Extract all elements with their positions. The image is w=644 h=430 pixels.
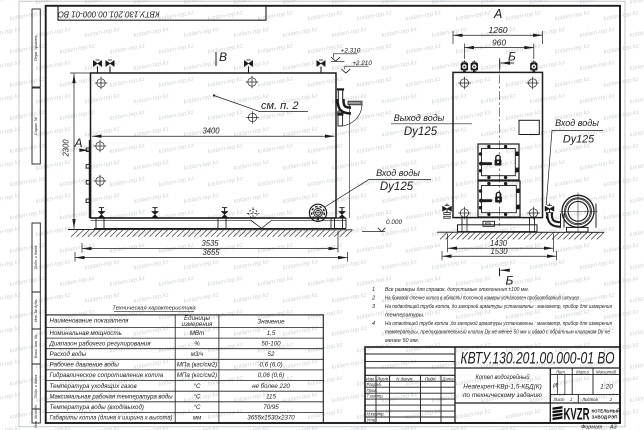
- svg-text:Разраб.: Разраб.: [367, 382, 383, 387]
- svg-text:м3/ч: м3/ч: [191, 351, 204, 358]
- svg-text:Т.контр.: Т.контр.: [367, 394, 384, 399]
- svg-text:115: 115: [266, 394, 276, 401]
- svg-text:Максимальная рабочая температу: Максимальная рабочая температура воды: [50, 394, 173, 401]
- svg-text:Масштаб: Масштаб: [596, 369, 617, 374]
- svg-text:°С: °С: [194, 404, 201, 411]
- svg-text:3400: 3400: [203, 127, 220, 136]
- svg-text:Dy125: Dy125: [563, 134, 595, 146]
- svg-text:Техническая характеристика: Техническая характеристика: [112, 306, 196, 312]
- svg-text:Значение: Значение: [257, 319, 285, 326]
- svg-text:0.000: 0.000: [386, 219, 402, 226]
- svg-text:2: 2: [371, 296, 375, 302]
- svg-text:Подп.: Подп.: [425, 376, 436, 381]
- svg-text:°С: °С: [194, 394, 201, 401]
- svg-text:Инв. № подл.: Инв. № подл.: [34, 404, 38, 428]
- svg-text:1530: 1530: [491, 247, 508, 256]
- svg-text:МПа (кгс/см2): МПа (кгс/см2): [177, 372, 217, 379]
- svg-text:KVZR: KVZR: [564, 406, 590, 424]
- svg-text:КВТУ.130.201.00.000-01 ВО: КВТУ.130.201.00.000-01 ВО: [58, 9, 160, 18]
- svg-text:Б: Б: [506, 274, 514, 288]
- svg-text:°С: °С: [194, 383, 201, 390]
- svg-text:Лит.: Лит.: [555, 369, 566, 374]
- svg-text:%: %: [194, 340, 200, 347]
- svg-text:Листов: Листов: [581, 397, 598, 402]
- svg-text:Heatexpert-КВр-1,5-КБД(К): Heatexpert-КВр-1,5-КБД(К): [463, 384, 541, 391]
- svg-text:Габариты котла (длина х ширина: Габариты котла (длина х ширина х высота): [50, 415, 173, 422]
- svg-text:В: В: [219, 50, 227, 64]
- svg-text:1,5: 1,5: [267, 330, 276, 337]
- svg-text:по техническому заданию: по техническому заданию: [463, 391, 542, 399]
- svg-text:Подп. и дата: Подп. и дата: [34, 246, 38, 270]
- svg-text:измерения: измерения: [182, 321, 214, 328]
- svg-text:Подп. и дата: Подп. и дата: [34, 375, 38, 399]
- svg-text:Формат: Формат: [581, 424, 603, 430]
- svg-text:На боковой стенке котла в обла: На боковой стенке котла в области топочн…: [385, 295, 579, 302]
- svg-text:1260: 1260: [489, 26, 508, 35]
- svg-text:не более 220: не более 220: [252, 383, 290, 390]
- svg-text:Изм.: Изм.: [366, 376, 375, 381]
- svg-text:50-100: 50-100: [261, 340, 281, 347]
- svg-text:Температура уходящих газов: Температура уходящих газов: [50, 383, 138, 390]
- svg-text:А: А: [493, 7, 502, 21]
- svg-text:Справ. №: Справ. №: [33, 116, 38, 135]
- svg-text:Пров.: Пров.: [367, 388, 378, 393]
- svg-text:2300: 2300: [61, 139, 70, 157]
- svg-text:А: А: [74, 136, 83, 150]
- svg-text:Все размеры для справок, допус: Все размеры для справок, допустимые откл…: [385, 287, 529, 293]
- svg-text:Лист: Лист: [376, 376, 388, 381]
- svg-text:Диапазон рабочего регулировани: Диапазон рабочего регулирования: [49, 340, 152, 347]
- svg-text:960: 960: [492, 38, 506, 47]
- svg-text:Перв. примен.: Перв. примен.: [33, 35, 38, 62]
- svg-text:1: 1: [372, 287, 375, 293]
- svg-text:менее 50 мм.: менее 50 мм.: [385, 338, 419, 344]
- svg-text:0,6 (6,0): 0,6 (6,0): [259, 362, 282, 369]
- svg-text:0,06 (0,6): 0,06 (0,6): [258, 372, 284, 379]
- svg-text:КОТЕЛЬНЫЙ: КОТЕЛЬНЫЙ: [592, 409, 621, 414]
- svg-text:3535: 3535: [202, 239, 219, 248]
- svg-text:52: 52: [268, 351, 275, 358]
- svg-text:N докум.: N докум.: [396, 376, 413, 381]
- svg-text:И: И: [553, 383, 558, 390]
- svg-text:МПа (кгс/см2): МПа (кгс/см2): [177, 362, 217, 369]
- svg-text:КВТУ.130.201.00.000-01 ВО: КВТУ.130.201.00.000-01 ВО: [461, 350, 615, 368]
- svg-text:Наименование показателя: Наименование показателя: [50, 318, 130, 325]
- svg-text:На отводящей трубе котла ,до з: На отводящей трубе котла ,до запорной ар…: [385, 320, 612, 327]
- svg-text:Выход воды: Выход воды: [394, 113, 445, 123]
- svg-text:Dy125: Dy125: [404, 126, 438, 138]
- svg-text:1:20: 1:20: [600, 384, 613, 391]
- svg-text:Вход воды: Вход воды: [376, 168, 420, 178]
- svg-text:Лист: Лист: [552, 397, 564, 402]
- svg-text:70/95: 70/95: [263, 404, 279, 411]
- svg-text:Н.контр.: Н.контр.: [367, 412, 385, 417]
- svg-text:Инв. № дубл.: Инв. № дубл.: [34, 299, 38, 322]
- svg-text:Вход воды: Вход воды: [555, 118, 599, 128]
- svg-text:Масса: Масса: [576, 369, 589, 374]
- svg-text:Номинальная мощность: Номинальная мощность: [50, 330, 122, 337]
- svg-text:4: 4: [372, 321, 375, 327]
- svg-text:МВт: МВт: [190, 330, 204, 337]
- svg-text:температуры.: температуры.: [385, 313, 424, 319]
- svg-text:Котел водогрейный: Котел водогрейный: [476, 373, 530, 381]
- svg-text:А3: А3: [609, 424, 617, 430]
- svg-text:Температура воды (вход/выход): Температура воды (вход/выход): [50, 404, 144, 411]
- svg-text:Утв.: Утв.: [367, 418, 377, 423]
- svg-text:Взам. инв. №: Взам. инв. №: [34, 335, 38, 358]
- svg-text:3655: 3655: [203, 248, 220, 257]
- svg-text:Dy125: Dy125: [380, 181, 414, 193]
- svg-text:На подводящей трубе котла, д: На подводящей трубе котла, до запорной а…: [385, 303, 612, 310]
- svg-text:Гидравлическое сопротивление к: Гидравлическое сопротивление котла: [50, 372, 164, 379]
- svg-text:Дата: Дата: [441, 376, 454, 381]
- svg-text:температуры, предохранительный: температуры, предохранительный клапан Dу…: [385, 329, 610, 336]
- svg-text:Б: Б: [508, 50, 516, 64]
- svg-text:3655х1530х2370: 3655х1530х2370: [247, 415, 295, 422]
- svg-text:мм: мм: [193, 415, 202, 422]
- svg-text:ЗАВОД РЭП: ЗАВОД РЭП: [592, 415, 618, 420]
- svg-text:Расход воды: Расход воды: [50, 351, 87, 358]
- svg-text:Рабочее давление воды: Рабочее давление воды: [50, 362, 120, 369]
- svg-text:см. п. 2: см. п. 2: [261, 100, 298, 112]
